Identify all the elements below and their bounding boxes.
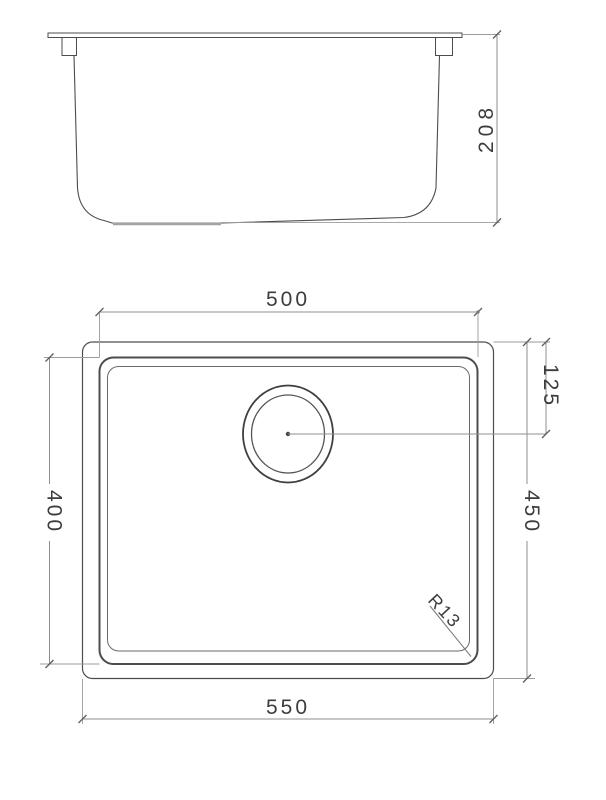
dim-end-dot <box>476 310 479 313</box>
overall-width-dimension: 550 <box>79 679 498 724</box>
bowl-depth-label: 400 <box>43 490 66 534</box>
outer-edge-rect <box>83 342 494 679</box>
drain-offset-dimension: 125 <box>494 338 563 438</box>
bowl-depth-dimension: 400 <box>40 354 100 669</box>
sink-rim-profile <box>48 33 462 38</box>
overall-depth-label: 450 <box>520 490 543 534</box>
side-elevation-view <box>48 33 462 224</box>
bowl-outer-rect <box>100 358 478 665</box>
drawing-sheet: 208 500 125 450 <box>0 0 606 800</box>
bowl-width-label: 500 <box>266 288 310 311</box>
sink-body-profile <box>74 56 440 224</box>
drain-offset-label: 125 <box>539 364 562 408</box>
corner-radius-label: R13 <box>424 590 465 632</box>
plan-view <box>83 342 547 679</box>
overall-depth-dimension: 450 <box>494 338 544 683</box>
mounting-clip-right <box>436 38 453 56</box>
overall-width-label: 550 <box>266 696 310 719</box>
corner-radius-annotation: R13 <box>424 590 471 656</box>
technical-drawing-canvas: 208 500 125 450 <box>0 0 606 800</box>
bowl-width-dimension: 500 <box>96 288 483 357</box>
height-dimension-label: 208 <box>475 103 498 153</box>
height-dimension: 208 <box>224 31 501 227</box>
bowl-inner-rect <box>108 367 470 652</box>
mounting-clip-left <box>62 38 77 56</box>
